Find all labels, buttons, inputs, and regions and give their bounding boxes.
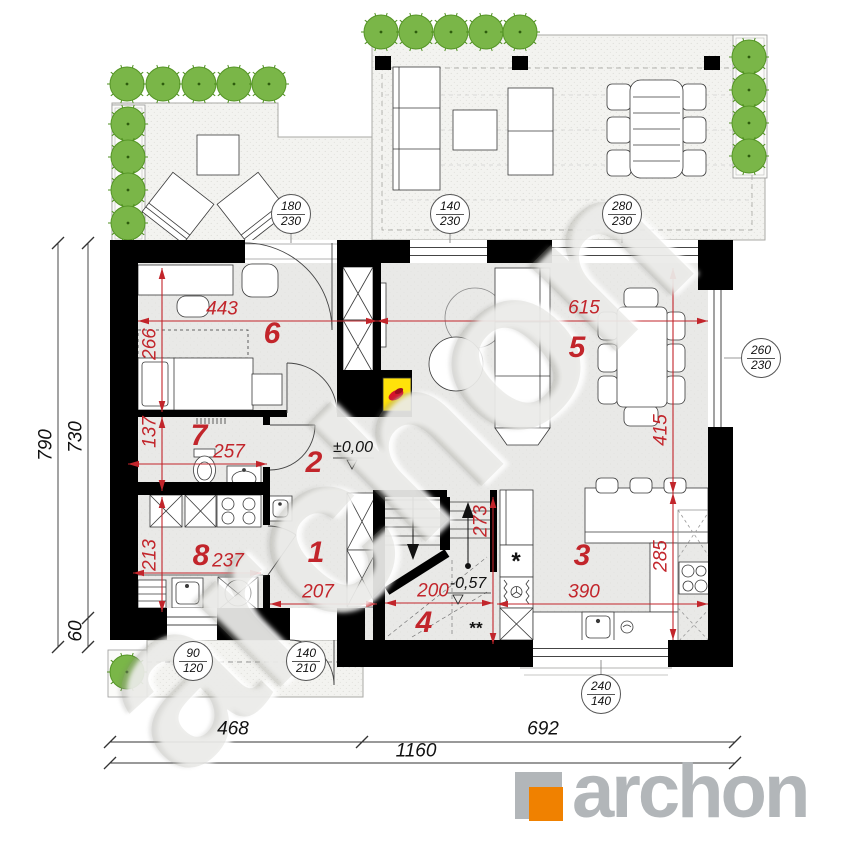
terrace-table <box>197 135 239 175</box>
pergola-post <box>375 56 391 70</box>
dim-266: 266 <box>141 328 160 360</box>
dining-chair <box>598 344 618 372</box>
note-double-asterisk: ** <box>469 620 482 637</box>
opening-spec-140-230: 140230 <box>430 194 470 234</box>
level-landing: -0,57 <box>450 576 486 592</box>
ext-dim-790: 790 <box>37 429 56 461</box>
room-number-6: 6 <box>264 319 281 349</box>
dining-chair <box>624 288 658 308</box>
sink <box>172 578 203 608</box>
barstool <box>630 478 652 493</box>
pillow <box>142 362 168 406</box>
room-number-3: 3 <box>574 541 591 571</box>
outdoor-table <box>453 110 497 150</box>
dining-table <box>617 307 667 407</box>
ext-dim-1160: 1160 <box>396 742 437 761</box>
opening-spec-260-230: 260230 <box>741 338 781 378</box>
tall-cabinet <box>500 490 533 545</box>
dining-chair <box>665 344 685 372</box>
dim-285: 285 <box>652 540 671 572</box>
room-number-7: 7 <box>191 421 208 451</box>
nightstand <box>252 374 282 405</box>
opening-spec-240-140: 240140 <box>581 674 621 714</box>
ext-dim-60: 60 <box>67 620 86 641</box>
outdoor-chair <box>607 117 631 143</box>
note-asterisk: * <box>511 550 520 574</box>
desk-chair <box>177 296 209 317</box>
dining-chair <box>665 312 685 340</box>
outdoor-chair <box>607 150 631 176</box>
outdoor-chair <box>682 117 706 143</box>
dim-615: 615 <box>568 299 600 318</box>
dim-213: 213 <box>141 539 160 571</box>
archon-logo: archon <box>515 768 835 843</box>
dim-273: 273 <box>472 505 491 537</box>
barstool <box>664 478 686 493</box>
room-number-2: 2 <box>306 448 323 478</box>
round-table <box>429 337 483 391</box>
ext-dim-468: 468 <box>217 720 249 739</box>
dim-443: 443 <box>206 300 238 319</box>
pergola-post <box>704 56 720 70</box>
ext-dim-730: 730 <box>67 421 86 453</box>
dim-390: 390 <box>568 583 600 602</box>
fireplace-icon <box>383 378 411 411</box>
dining-chair <box>598 312 618 340</box>
outdoor-chair <box>607 84 631 110</box>
ext-dim-692: 692 <box>527 720 559 739</box>
room-number-4: 4 <box>416 608 433 638</box>
opening-spec-140-210: 140210 <box>286 641 326 681</box>
opening-spec-90-120: 90120 <box>173 641 213 681</box>
corner-sofa <box>495 268 550 428</box>
floor-plan-drawing <box>0 0 853 853</box>
dim-207: 207 <box>302 583 334 602</box>
barstool <box>596 478 618 493</box>
pergola-post <box>512 56 528 70</box>
dim-200: 200 <box>417 582 449 601</box>
outdoor-sofa <box>393 67 440 190</box>
kitchen-sink <box>582 612 614 642</box>
dim-237: 237 <box>212 552 244 571</box>
dim-137: 137 <box>141 416 160 448</box>
kitchen-island <box>585 488 708 543</box>
opening-spec-280-230: 280230 <box>602 194 642 234</box>
room-number-5: 5 <box>569 333 586 363</box>
opening-spec-180-230: 180230 <box>271 194 311 234</box>
desk <box>138 265 233 295</box>
outdoor-sofa-2 <box>508 88 553 175</box>
dim-415: 415 <box>652 414 671 446</box>
room-number-8: 8 <box>193 541 210 571</box>
outdoor-chair <box>682 84 706 110</box>
floor-plan-page: archon 6 7 2 1 8 4 3 5 443 615 266 137 2… <box>0 0 853 853</box>
room-number-1: 1 <box>308 538 325 568</box>
logo-orange-square <box>529 787 563 821</box>
logo-brand-text: archon <box>572 754 807 830</box>
dining-chair <box>598 376 618 404</box>
dim-257: 257 <box>213 443 245 462</box>
level-ground: ±0,00 <box>333 440 373 456</box>
outdoor-chair <box>682 150 706 176</box>
armchair <box>242 264 278 297</box>
dining-chair <box>665 376 685 404</box>
